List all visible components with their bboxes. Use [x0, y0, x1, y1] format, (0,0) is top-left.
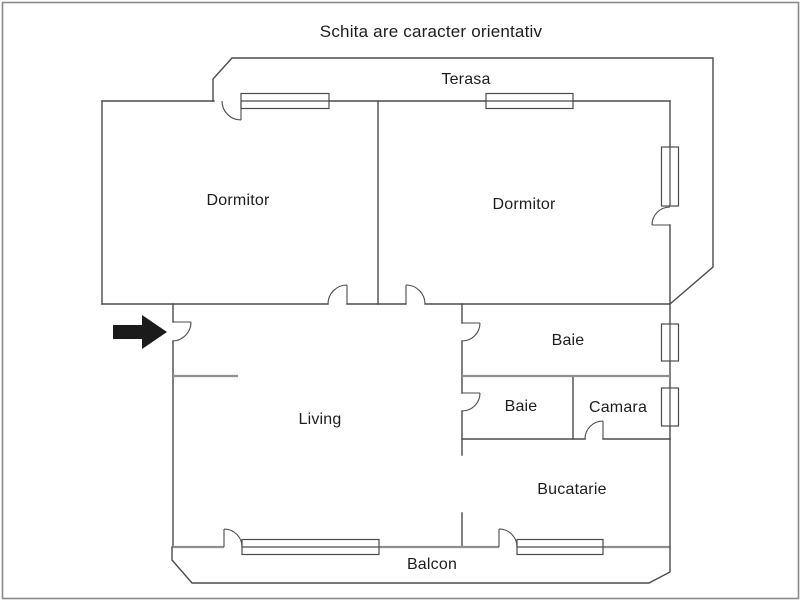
window-dormitor-right — [662, 147, 679, 206]
room-label-camara: Camara — [589, 399, 647, 417]
door-camara — [585, 421, 603, 439]
room-label-bucatarie: Bucatarie — [537, 481, 606, 499]
window-bucatarie-balcon — [517, 540, 603, 555]
door-living-balcon — [224, 529, 242, 547]
window-living-balcon — [242, 540, 379, 555]
door-dormitor-left-terasa — [222, 101, 241, 120]
window-camara — [662, 388, 679, 426]
door-baie-bottom — [462, 393, 480, 411]
entrance-arrow-icon — [113, 315, 167, 349]
window-terasa-right — [486, 94, 573, 109]
door-dormitor-right — [406, 285, 425, 304]
door-dormitor-left — [328, 285, 347, 304]
floor-plan-drawing — [0, 0, 802, 602]
room-label-living: Living — [298, 411, 341, 429]
room-label-terasa: Terasa — [441, 71, 490, 89]
page-border — [3, 3, 799, 599]
door-entrance — [173, 322, 191, 341]
floor-plan-page: Schita are caracter orientativ Terasa Do… — [0, 0, 802, 602]
window-baie-top — [662, 324, 679, 361]
plan-title: Schita are caracter orientativ — [320, 22, 542, 42]
door-bucatarie-balcon — [499, 529, 517, 547]
door-baie-top — [462, 323, 480, 341]
room-label-dormitor-right: Dormitor — [493, 196, 556, 214]
door-dormitor-right-terasa — [652, 207, 670, 225]
room-label-baie-top: Baie — [552, 332, 585, 350]
room-label-dormitor-left: Dormitor — [207, 192, 270, 210]
room-label-balcon: Balcon — [407, 556, 457, 574]
room-label-baie-bottom: Baie — [505, 398, 538, 416]
window-terasa-left — [241, 94, 329, 109]
